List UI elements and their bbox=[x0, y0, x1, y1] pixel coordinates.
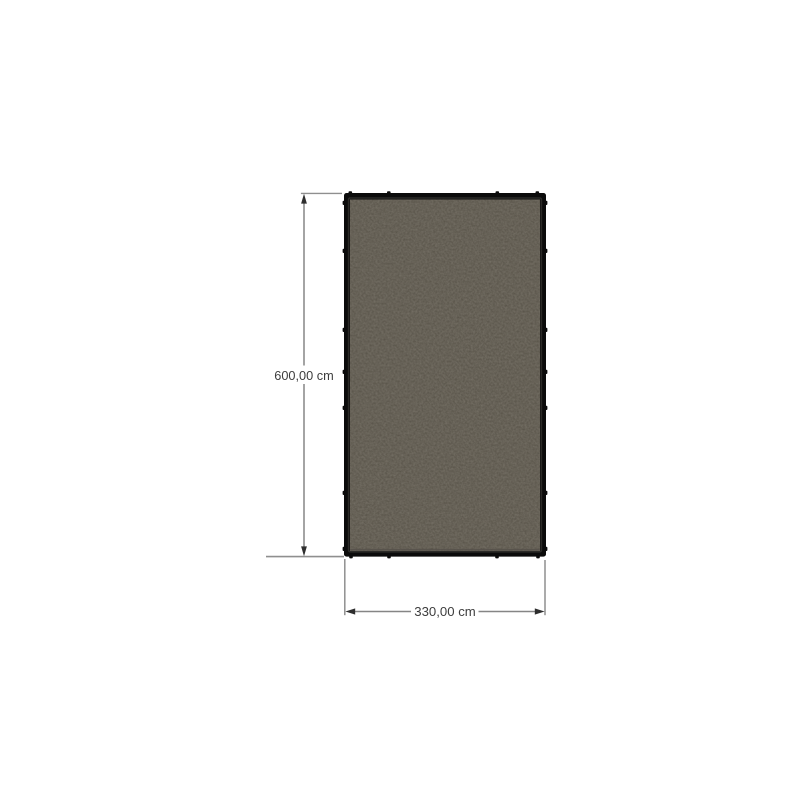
svg-text:600,00 cm: 600,00 cm bbox=[274, 368, 334, 383]
svg-text:330,00 cm: 330,00 cm bbox=[414, 604, 476, 619]
